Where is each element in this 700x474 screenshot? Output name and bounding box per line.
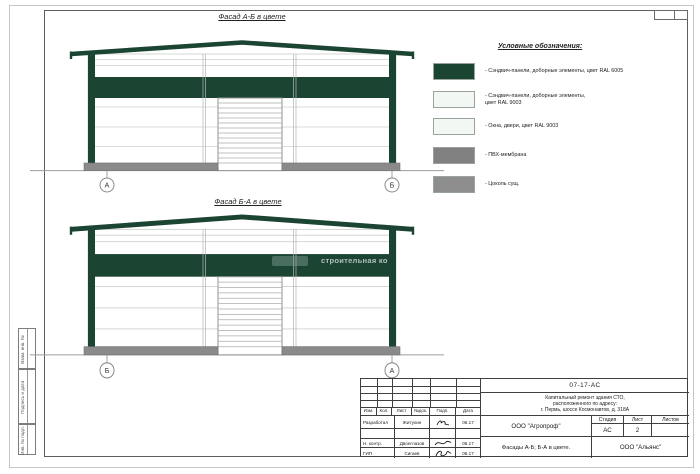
watermark-text: строительная ко [321,256,388,265]
stamp-label: Подпись и дата [19,370,27,425]
swatch-color [434,64,475,80]
swatch-color [434,92,475,108]
col-list: Лист [392,407,412,415]
person-name: Сигаев [395,448,430,458]
sheet-number-cell: 2 [623,424,651,437]
legend-swatch-plinth [433,176,475,193]
facade-ab-drawing: А Б [27,37,459,193]
column-left [88,54,95,163]
role-label [361,429,395,438]
watermark-logo [272,256,308,266]
signature [430,439,456,447]
roof [71,217,413,229]
sign-date [456,429,480,438]
stamp-divider [27,425,28,454]
signature-glyph [434,439,452,447]
facade1-title: Фасад А-Б в цвете [152,12,352,21]
row-empty [361,429,480,439]
signature [430,448,456,458]
legend-label: - Цоколь сущ. [485,176,680,193]
column-right [389,54,396,163]
plinth-left [84,163,218,171]
stage-label-cell: Стадия [591,416,623,424]
axis-marker-left: Б [105,366,110,375]
sign-date: 06.17 [456,416,480,428]
legend-swatch-membrane [433,147,475,164]
legend-item-ral9003-panels: - Сэндвич-панели, доборные элементы, цве… [433,91,680,108]
stamp-label: Взам. инв. № [19,329,27,370]
stamp-label: Инв. № подл. [19,425,27,456]
column-right [389,229,396,346]
sheet-label-cell: Лист [623,416,651,424]
axis-marker-left: А [105,183,110,190]
swatch-color [434,148,475,164]
title-block: Изм. Кол. Лист №док. Подп. Дата Разработ… [360,378,688,457]
corner-stamp-box [654,10,688,20]
plinth-right [282,163,400,171]
plinth-right [282,347,400,355]
revision-header-row: Изм. Кол. Лист №док. Подп. Дата [361,407,480,416]
legend-item-plinth: - Цоколь сущ. [433,176,680,193]
col-data: Дата [456,407,480,415]
swatch-color [434,119,475,135]
person-name: Житухин [395,416,430,428]
column-left [88,229,95,346]
stamp-inv-podl: Инв. № подл. [18,424,36,455]
sheets-label-cell: Листов [651,416,689,424]
green-panel-band [88,77,396,98]
legend-swatch-ral6005 [433,63,475,80]
sectional-door [218,277,282,355]
signature-glyph [434,418,452,427]
role-label: Разработал [361,416,395,428]
plinth-left [84,347,218,355]
legend-label: - ПВХ-мембрана [485,147,680,164]
signature-glyph [434,449,452,458]
axis-marker-right: Б [390,183,395,190]
legend-swatch-ral9003 [433,91,475,108]
corner-stamp-divider [674,11,675,19]
col-ndok: №док. [412,407,430,415]
revision-grid [361,379,480,408]
col-podp: Подп. [430,407,456,415]
designer-org-cell: ООО "Агропроф" [480,416,591,437]
sheet-title-cell: Фасады А-Б; Б-А в цвете. [480,437,591,458]
sheets-total-cell [651,424,689,437]
swatch-color [434,177,475,193]
facade-ba-drawing: Б А [27,211,459,379]
axis-marker-stems [107,171,392,178]
row-gip: ГИП Сигаев 06.17 [361,448,480,458]
axis-marker-right: А [390,366,395,375]
sectional-door [218,98,282,171]
stage-value-cell: АС [591,424,623,437]
contractor-org-cell: ООО "Альянс" [591,437,689,458]
doc-number-cell: 07-17-АС [480,379,689,393]
row-razrabotal: Разработал Житухин 06.17 [361,416,480,429]
legend-label: - Сэндвич-панели, доборные элементы, цве… [485,63,680,80]
role-label: ГИП [361,448,395,458]
legend-item-ral6005: - Сэндвич-панели, доборные элементы, цве… [433,63,680,80]
roof [71,43,413,55]
signature [430,416,456,428]
legend-label: - Сэндвич-панели, доборные элементы, цве… [485,91,680,108]
facade2-title: Фасад Б-А в цвете [148,197,348,206]
legend-swatch-windows [433,118,475,135]
legend-item-pvc-membrane: - ПВХ-мембрана [433,147,680,164]
legend-item-windows-doors: - Окна, двери, цвет RAL 9003 [433,118,680,135]
legend-title: Условные обозначения: [460,43,620,50]
sign-date: 06.17 [456,439,480,447]
role-label: Н. контр. [361,439,395,447]
person-name [395,429,430,438]
person-name: Двоеглазов [395,439,430,447]
project-line-3: г. Пермь, шоссе Космонавтов, д. 318А [541,407,629,413]
signature [430,429,456,438]
axis-marker-stems [107,355,392,363]
sign-date: 06.17 [456,448,480,458]
col-kol: Кол. [377,407,392,415]
row-nkontr: Н. контр. Двоеглазов 06.17 [361,439,480,448]
project-name-cell: Капитальный ремонт здания СТО, расположе… [480,393,689,416]
legend-label: - Окна, двери, цвет RAL 9003 [485,118,680,135]
col-izm: Изм. [361,407,377,415]
